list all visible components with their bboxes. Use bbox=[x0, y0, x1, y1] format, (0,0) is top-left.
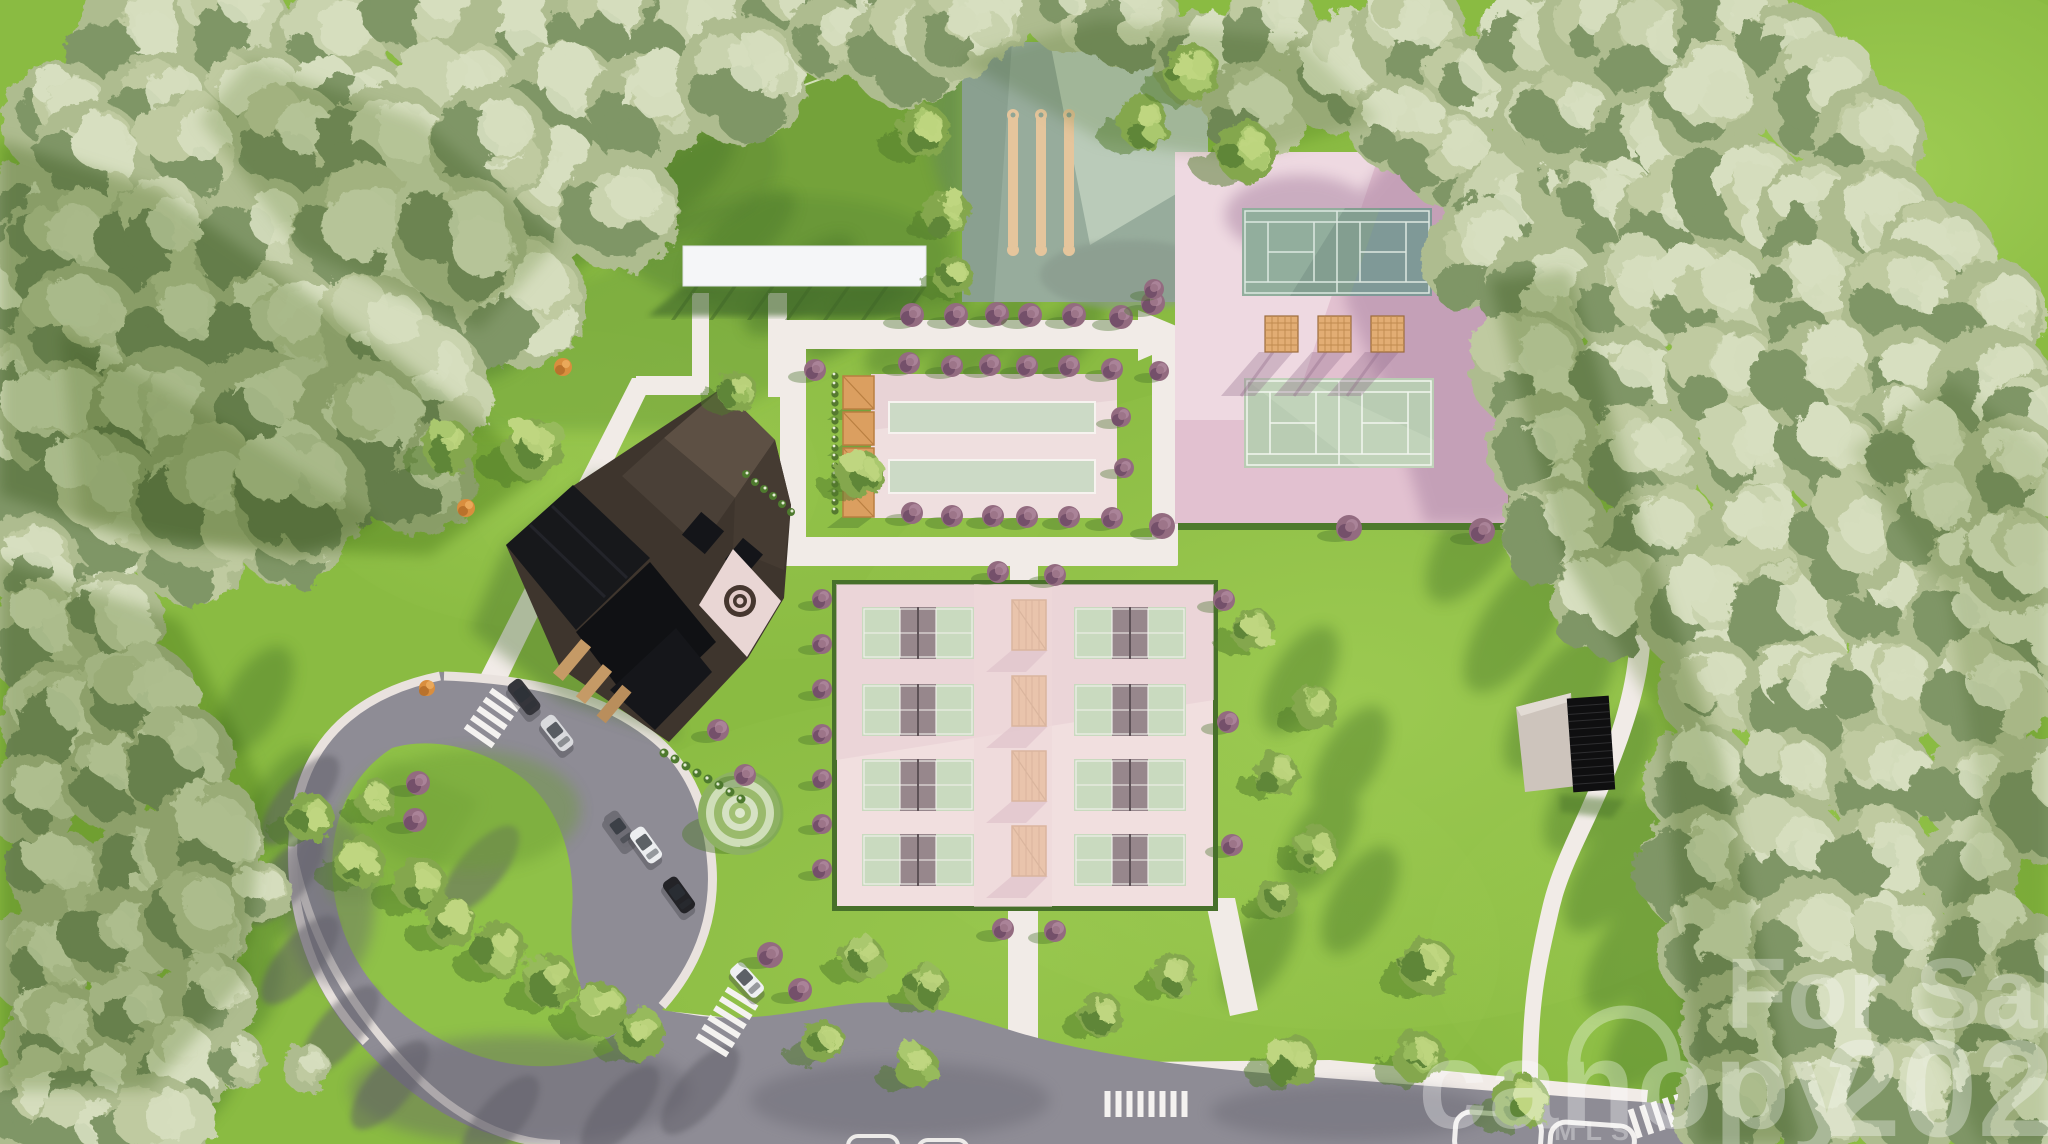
svg-text:MLS: MLS bbox=[1554, 1116, 1638, 1144]
svg-text:canopy: canopy bbox=[1418, 1016, 1862, 1144]
svg-text:2025: 2025 bbox=[1824, 1012, 2048, 1144]
